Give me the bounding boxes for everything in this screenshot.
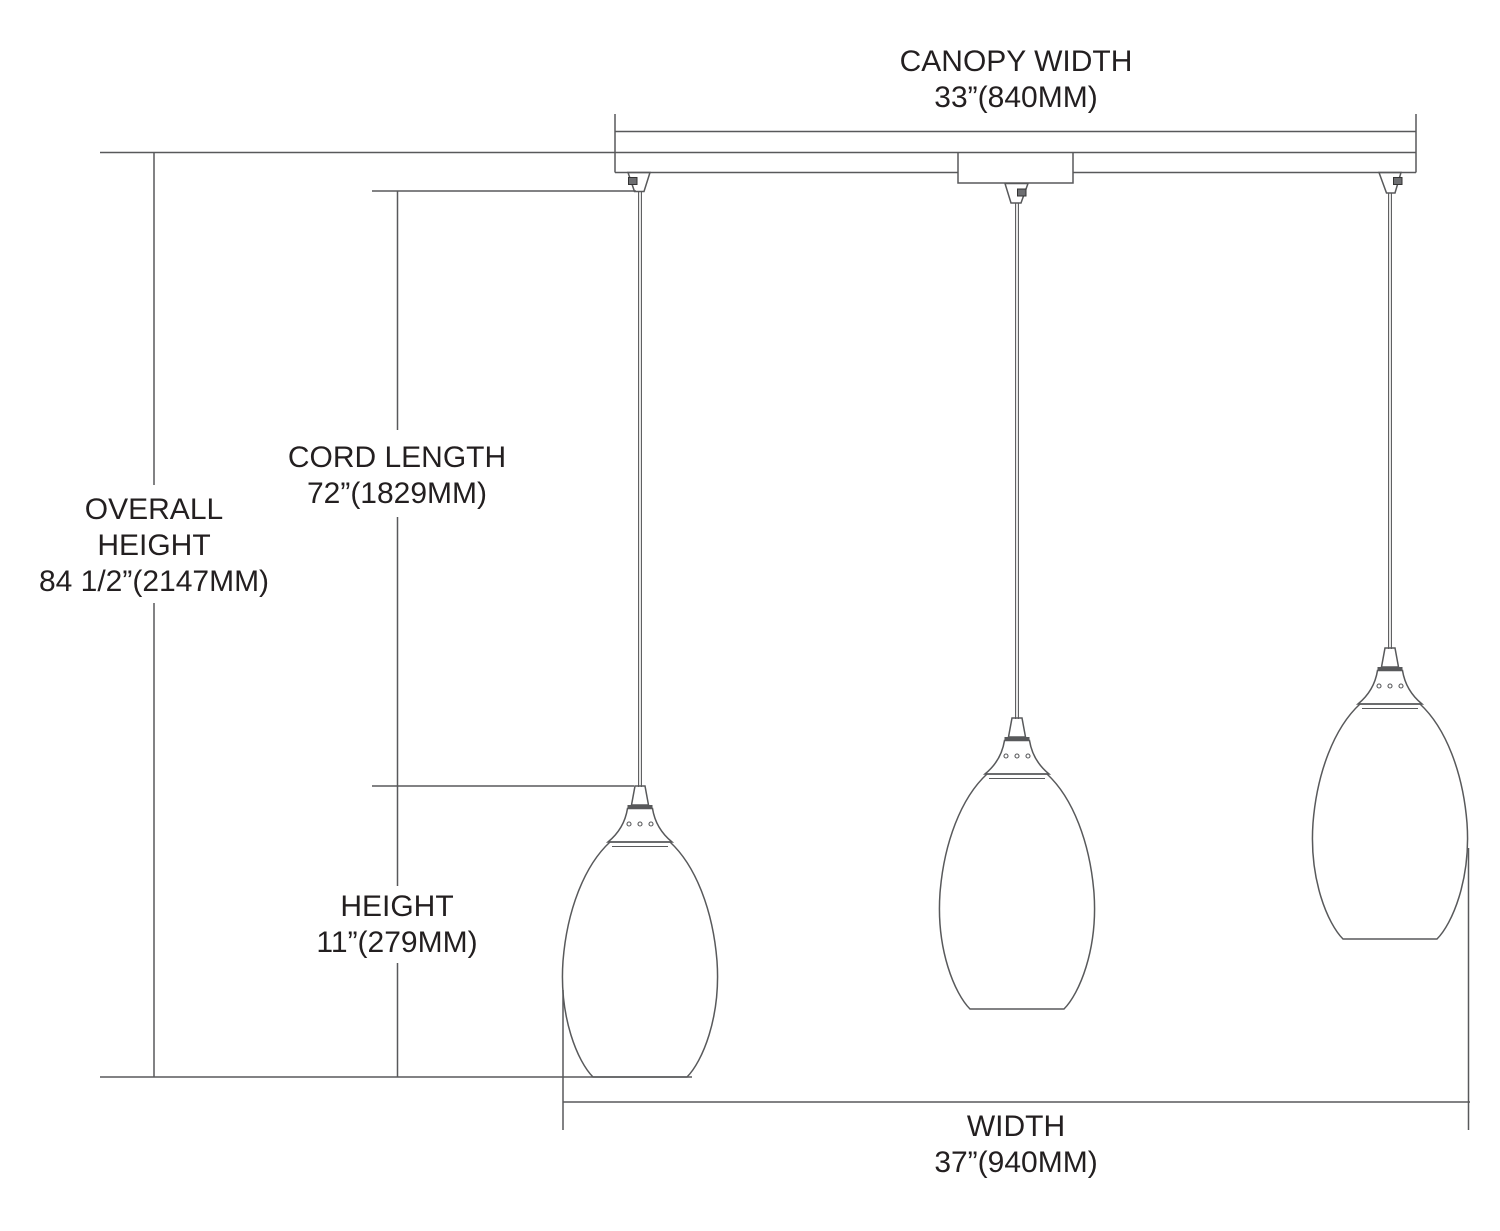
canopy-cord-hangers: [628, 173, 1402, 204]
line-drawing: [0, 0, 1500, 1231]
canopy-width-label: CANOPY WIDTH 33”(840MM): [900, 44, 1133, 116]
width-label: WIDTH 37”(940MM): [934, 1109, 1097, 1181]
cord-length-label: CORD LENGTH 72”(1829MM): [288, 440, 506, 512]
width-value: 37”(940MM): [934, 1145, 1097, 1181]
pendant-shades: [562, 648, 1467, 1077]
suspension-cords: [639, 192, 1392, 788]
canopy-width-value: 33”(840MM): [900, 80, 1133, 116]
height-value: 11”(279MM): [316, 925, 477, 961]
pendant-fixture-spec-diagram: CANOPY WIDTH 33”(840MM) OVERALL HEIGHT 8…: [0, 0, 1500, 1231]
overall-height-name-line2: HEIGHT: [39, 528, 269, 564]
canopy-width-name: CANOPY WIDTH: [900, 44, 1133, 80]
height-label: HEIGHT 11”(279MM): [316, 889, 477, 961]
dimension-lines: [100, 153, 1470, 1131]
right-cord: [1389, 193, 1392, 649]
right-hanger-screw: [1394, 178, 1403, 185]
center-cord: [1016, 203, 1019, 719]
left-hanger-screw: [629, 178, 638, 185]
overall-height-value: 84 1/2”(2147MM): [39, 564, 269, 600]
canopy-center-junction-box: [958, 153, 1073, 184]
center-pendant-shade: [939, 718, 1094, 1009]
left-cord: [639, 192, 642, 788]
canopy-bar: [615, 114, 1416, 183]
height-name: HEIGHT: [316, 889, 477, 925]
overall-height-label: OVERALL HEIGHT 84 1/2”(2147MM): [39, 492, 269, 600]
overall-height-name-line1: OVERALL: [39, 492, 269, 528]
cord-length-value: 72”(1829MM): [288, 476, 506, 512]
center-hanger-screw: [1018, 189, 1027, 196]
width-name: WIDTH: [934, 1109, 1097, 1145]
cord-length-name: CORD LENGTH: [288, 440, 506, 476]
left-pendant-shade: [562, 786, 717, 1077]
right-pendant-shade: [1312, 648, 1467, 939]
